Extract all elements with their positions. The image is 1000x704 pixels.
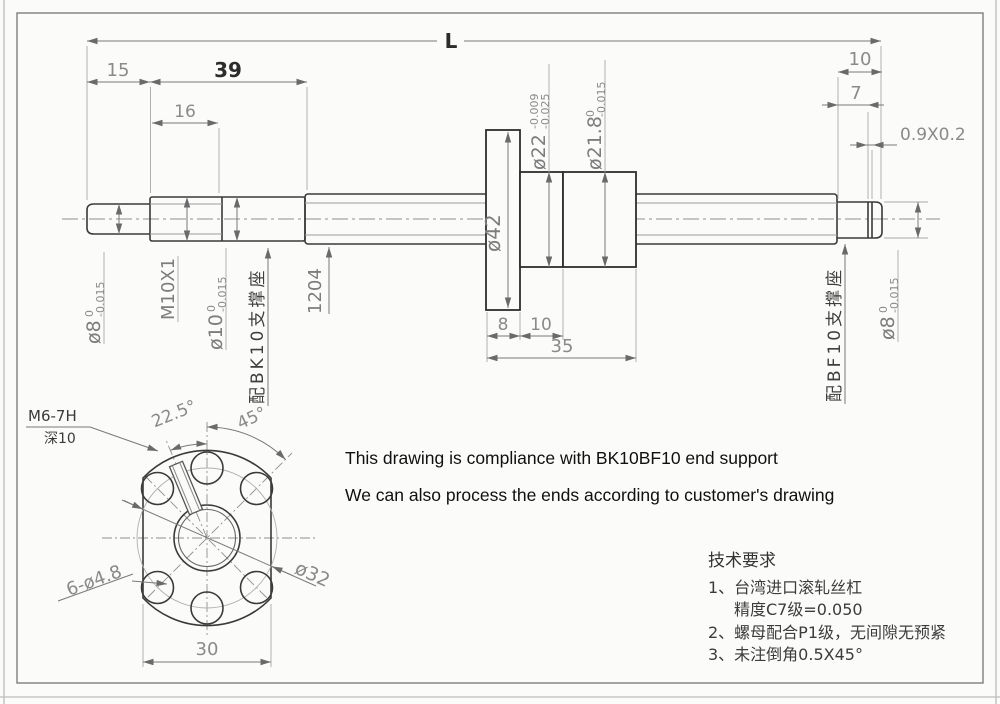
d218-text: ø21.8: [584, 116, 606, 170]
d8-left-text: ø8: [83, 320, 105, 344]
note-line-1: This drawing is compliance with BK10BF10…: [345, 448, 778, 468]
dim-right-10: 10: [849, 49, 872, 70]
tech-item-1: 1、台湾进口滚轧丝杠: [708, 578, 862, 597]
dim-angle-45: 45°: [234, 403, 270, 434]
sheet-frame: [0, 0, 1000, 704]
dim-angle-225: 22.5°: [149, 396, 199, 432]
flange-dia-text: ø42: [481, 214, 505, 252]
ballscrew-drawing: L 15 39 16 10 7 0.9X0.2 8 10 35 ø8 0 -0.…: [0, 0, 1000, 704]
dim-nut-35: 35: [551, 336, 574, 357]
technical-requirements: 技术要求 1、台湾进口滚轧丝杠 精度C7级=0.050 2、螺母配合P1级，无间…: [708, 551, 946, 664]
thread-text: M10X1: [158, 258, 179, 320]
label-d8-left: ø8 0 -0.015: [83, 282, 107, 344]
dim-16: 16: [174, 102, 196, 122]
dim-39: 39: [214, 58, 242, 82]
bk10-text: 配BK10支撑座: [248, 268, 268, 404]
dim-bolt-holes: 6-ø4.8: [63, 561, 124, 600]
label-bf10-support: 配BF10支撑座: [825, 267, 845, 402]
dim-nut-10: 10: [530, 315, 552, 335]
d10-text: ø10: [205, 314, 227, 350]
note-line-2: We can also process the ends according t…: [345, 485, 834, 505]
dim-flange-8: 8: [498, 315, 509, 335]
label-d8-right: ø8 0 -0.015: [877, 278, 901, 340]
label-m6-depth: 深10: [44, 431, 76, 447]
label-d10-left: ø10 0 -0.015: [205, 277, 229, 350]
tech-item-1b: 精度C7级=0.050: [734, 600, 863, 619]
label-thread-m10: M10X1: [158, 258, 179, 320]
flange-end-view: [26, 422, 318, 667]
dim-right-7: 7: [850, 83, 861, 104]
dim-width-30: 30: [196, 639, 219, 660]
d8-right-tol-lower: -0.015: [888, 278, 901, 313]
label-d22-nut: ø22 -0.009 -0.025: [528, 94, 552, 170]
label-bk10-support: 配BK10支撑座: [248, 268, 268, 404]
label-m6: M6-7H: [28, 407, 77, 425]
engineering-drawing-page: L 15 39 16 10 7 0.9X0.2 8 10 35 ø8 0 -0.…: [0, 0, 1000, 704]
bf10-text: 配BF10支撑座: [825, 267, 845, 402]
label-d218-nut: ø21.8 0 -0.015: [584, 82, 608, 170]
tech-item-2: 2、螺母配合P1级，无间隙无预紧: [708, 623, 946, 642]
tech-item-3: 3、未注倒角0.5X45°: [708, 645, 863, 664]
dim-overall-length: L: [445, 29, 458, 53]
dim-bolt-circle: ø32: [292, 557, 334, 592]
tech-title: 技术要求: [708, 551, 776, 571]
d22-text: ø22: [528, 134, 550, 170]
dim-15: 15: [107, 60, 130, 81]
screw-model-text: 1204: [305, 268, 326, 314]
d8-right-text: ø8: [877, 316, 899, 340]
d22-tol-lower: -0.025: [539, 94, 552, 129]
d218-tol-lower: -0.015: [595, 82, 608, 117]
d8-left-tol-lower: -0.015: [94, 282, 107, 317]
dim-groove: 0.9X0.2: [900, 125, 966, 145]
label-flange-dia: ø42: [481, 214, 505, 252]
label-screw-model: 1204: [305, 268, 326, 314]
d10-tol-lower: -0.015: [216, 277, 229, 312]
